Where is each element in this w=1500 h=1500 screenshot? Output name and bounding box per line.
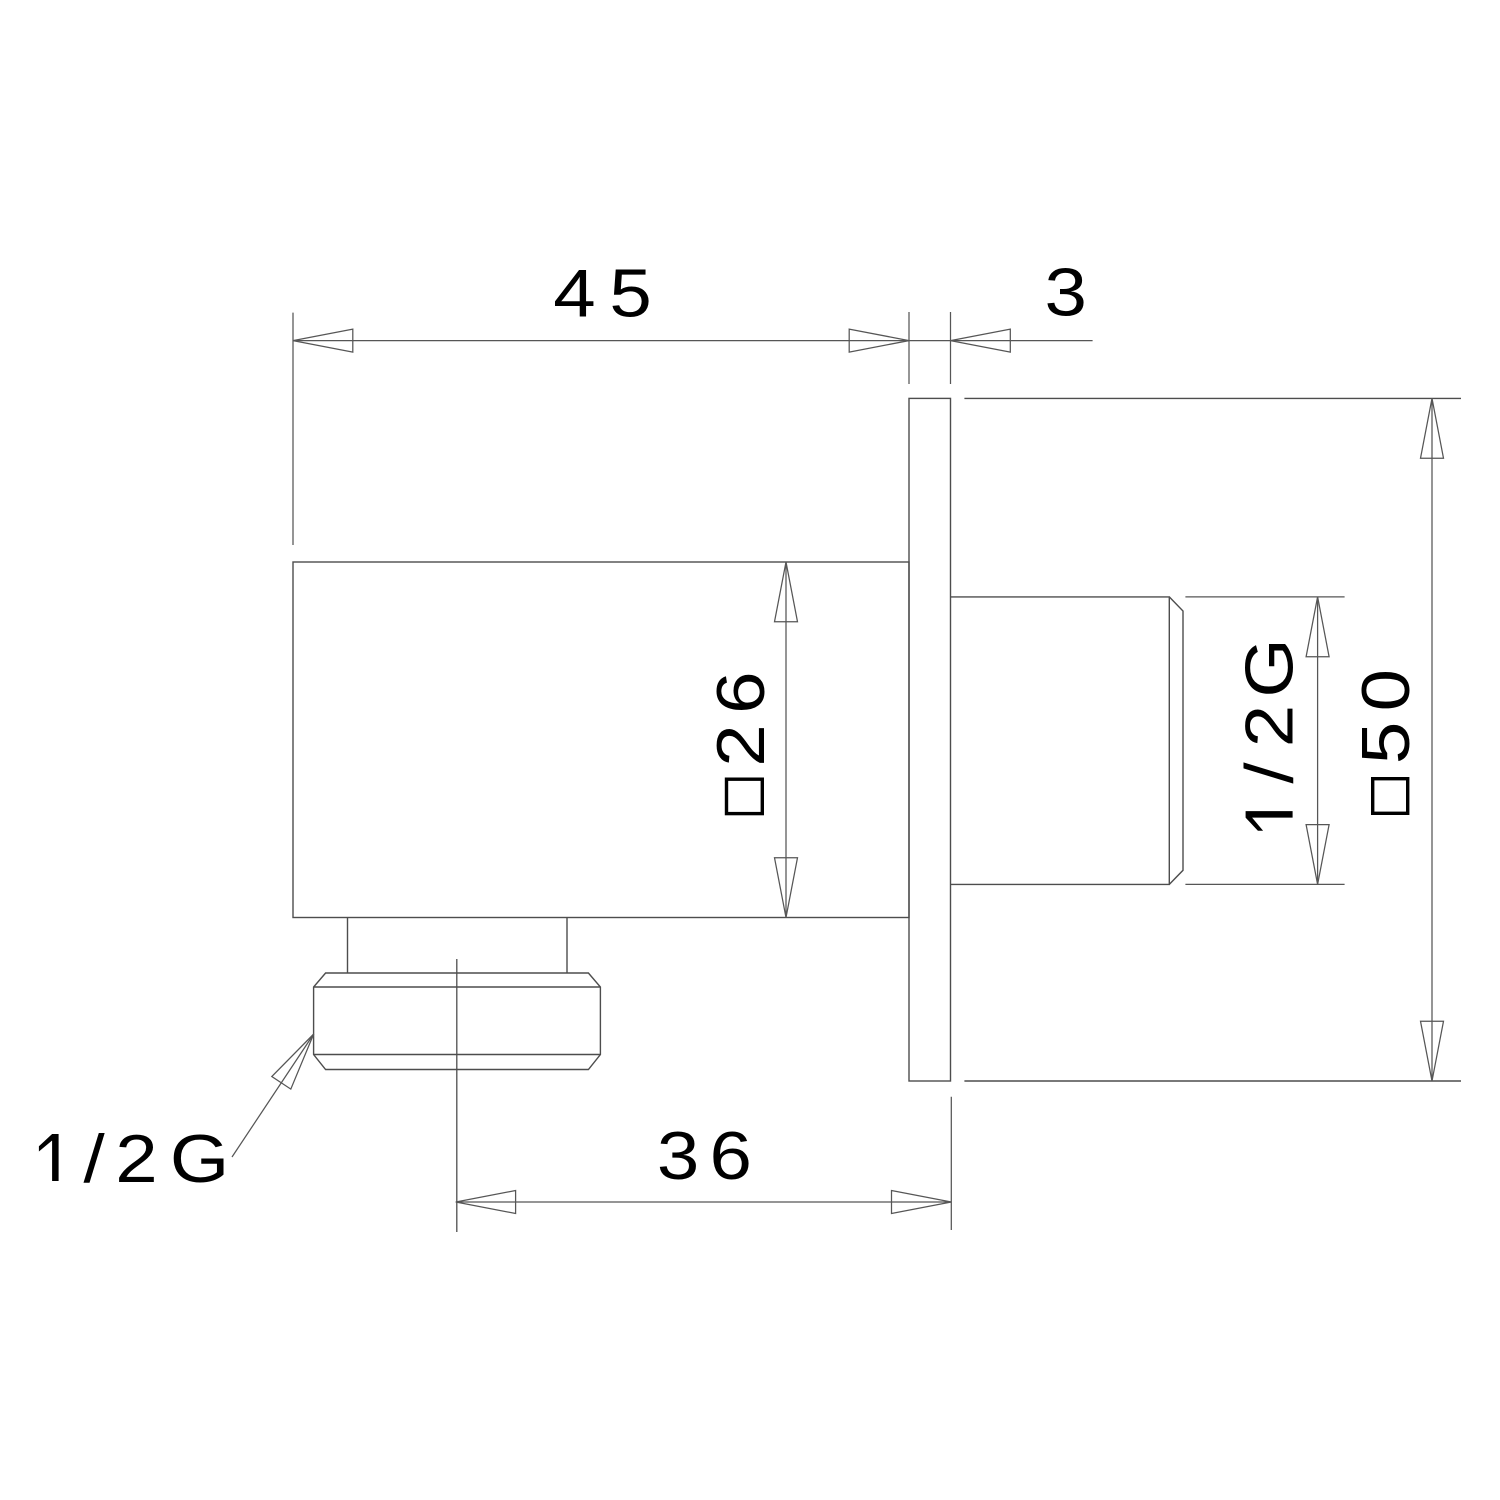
svg-text:3: 3	[1045, 256, 1087, 331]
svg-text:/2G: /2G	[1233, 638, 1308, 783]
